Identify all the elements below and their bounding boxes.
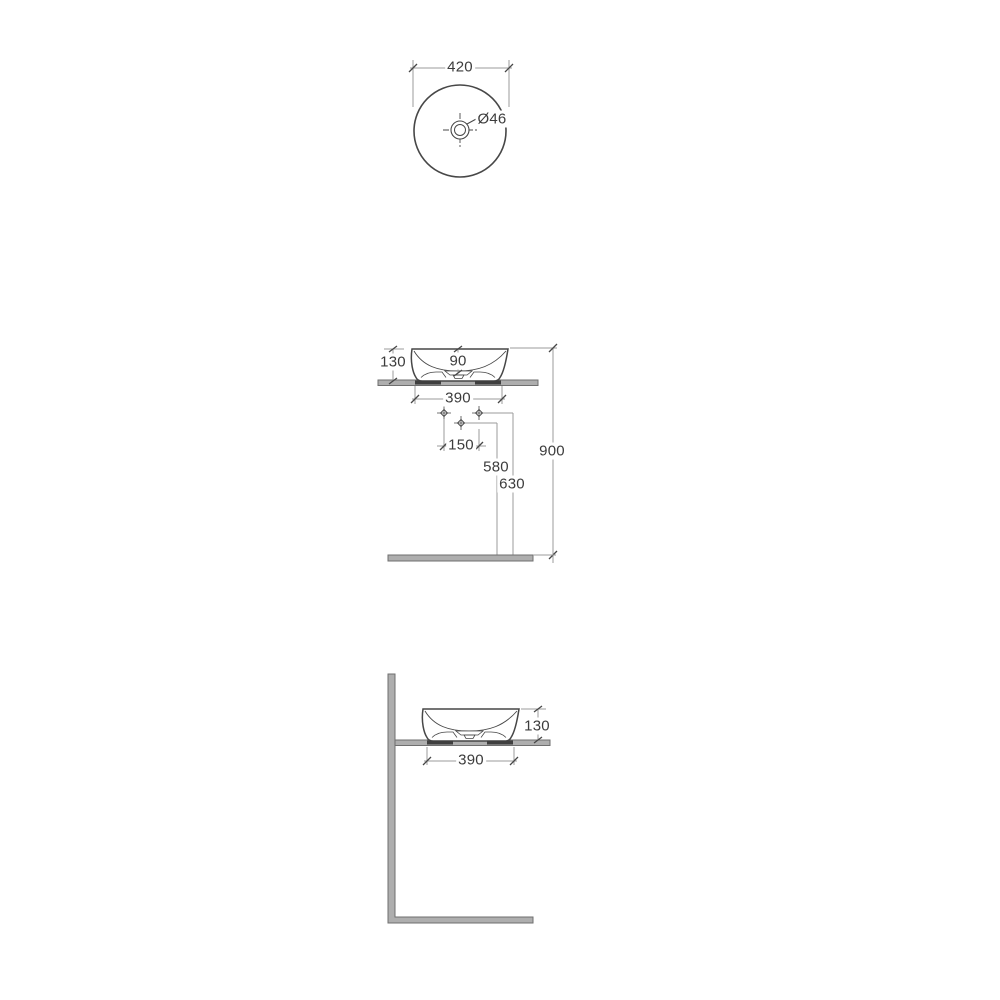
side-view (388, 674, 550, 923)
tap-hole-marker-left (437, 406, 451, 420)
dim-label-top-width: 420 (445, 59, 475, 76)
dim-label-front-total-height: 900 (537, 443, 567, 460)
dim-label-front-tap-spacing: 150 (446, 437, 476, 454)
side-drain-recess (456, 731, 483, 735)
dim-label-front-bowl-depth: 90 (447, 353, 468, 370)
front-floor (388, 555, 533, 561)
dim-label-side-height: 130 (522, 718, 552, 735)
front-view (378, 344, 557, 563)
drawing-linework (0, 0, 1000, 1000)
side-contact-pad-left (427, 741, 453, 745)
dim-label-front-tap-height: 630 (497, 476, 527, 493)
dim-label-side-width: 390 (456, 752, 486, 769)
dim-label-front-width: 390 (443, 390, 473, 407)
dim-label-front-mid-tap-height: 580 (481, 459, 511, 476)
dim-label-drain-diameter: Ø46 (476, 111, 509, 128)
drawing-canvas: 420 Ø46 130 90 390 150 580 630 900 130 3… (0, 0, 1000, 1000)
dim-label-front-height: 130 (378, 354, 408, 371)
side-contact-pad-right (487, 741, 513, 745)
front-contact-pad-left (415, 381, 441, 385)
drain-outer-circle (451, 121, 469, 139)
front-contact-pad-right (475, 381, 501, 385)
